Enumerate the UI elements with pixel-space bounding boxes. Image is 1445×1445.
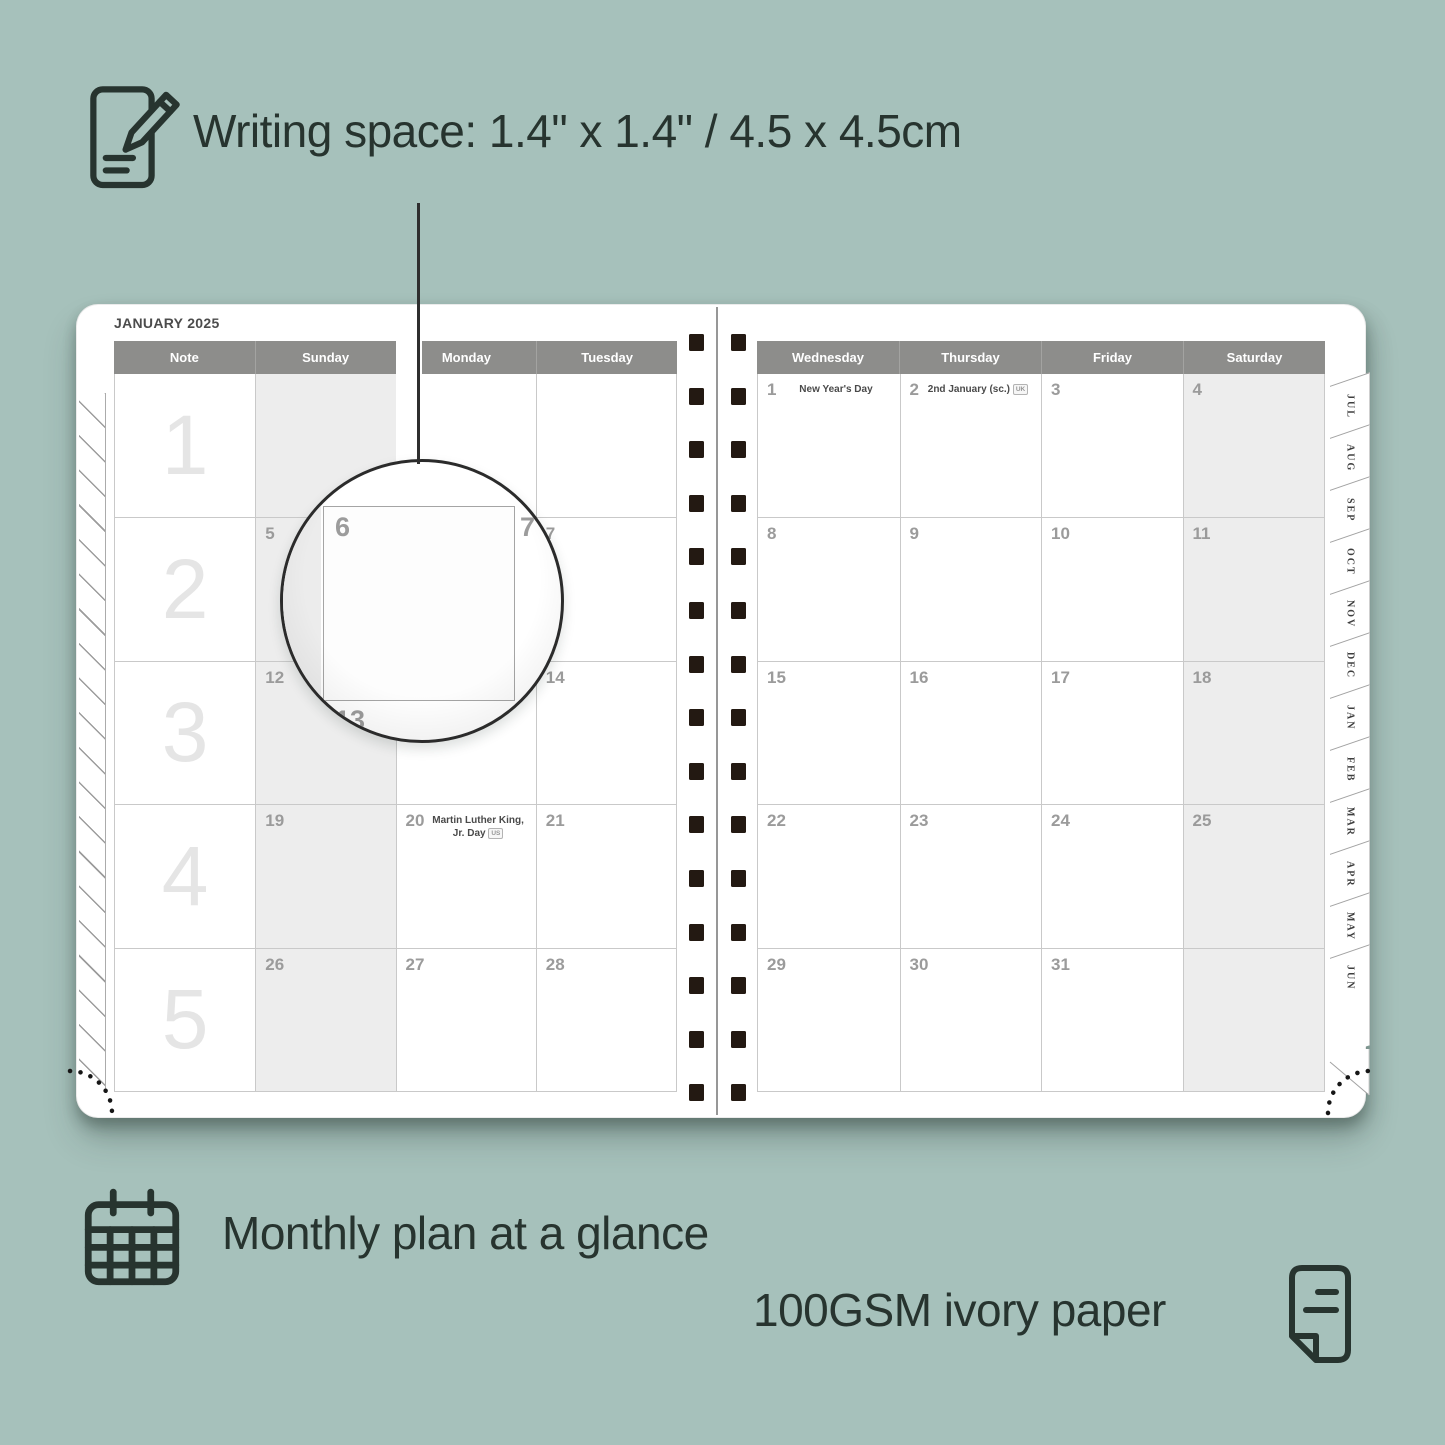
writing-note-pencil-icon — [84, 74, 188, 192]
spiral-hole — [731, 1031, 746, 1048]
spiral-hole — [731, 709, 746, 726]
date-number: 4 — [1184, 374, 1202, 400]
flag-badge: UK — [1013, 384, 1028, 395]
calendar-cell: 21 — [536, 804, 676, 947]
calendar-cell: 30 — [900, 948, 1042, 1091]
date-number: 25 — [1184, 805, 1212, 831]
calendar-cell: 14 — [536, 661, 676, 804]
calendar-cell: 1 — [115, 374, 255, 517]
date-number: 11 — [1184, 518, 1211, 544]
date-number: 31 — [1042, 949, 1070, 975]
date-number: 26 — [256, 949, 284, 975]
date-number: 18 — [1184, 662, 1212, 688]
date-number: 10 — [1042, 518, 1070, 544]
date-number: 1 — [758, 374, 776, 400]
spiral-hole — [689, 1084, 704, 1101]
spiral-hole — [731, 816, 746, 833]
week-number: 4 — [115, 805, 255, 947]
holiday-label: 2nd January (sc.) UK — [919, 374, 1041, 396]
calendar-cell: 9 — [900, 517, 1042, 660]
week-number: 5 — [115, 949, 255, 1091]
spiral-hole — [731, 924, 746, 941]
spiral-hole — [731, 656, 746, 673]
month-tab-label: AUG — [1334, 436, 1366, 480]
date-number: 20 — [397, 805, 425, 831]
calendar-cell: 11 — [1183, 517, 1325, 660]
calendar-cell: 29 — [758, 948, 900, 1091]
date-number: 12 — [256, 662, 284, 688]
holiday-label: New Year's Day — [776, 374, 899, 396]
date-number: 30 — [901, 949, 929, 975]
spiral-hole — [731, 763, 746, 780]
month-tab-label: SEP — [1334, 488, 1366, 532]
month-tab-label: DEC — [1334, 644, 1366, 688]
spiral-hole — [689, 656, 704, 673]
week-number: 1 — [115, 374, 255, 517]
date-number: 27 — [397, 949, 425, 975]
calendar-cell: 17 — [1041, 661, 1183, 804]
month-tab-label: OCT — [1334, 540, 1366, 584]
calendar-cell: 24 — [1041, 804, 1183, 947]
date-number: 24 — [1042, 805, 1070, 831]
calendar-cell: 15 — [758, 661, 900, 804]
pointer-line — [417, 203, 420, 464]
date-number: 19 — [256, 805, 284, 831]
right-grid: 1New Year's Day22nd January (sc.) UK3489… — [757, 374, 1325, 1092]
planner-book: JANUARY 2025 NoteSundayMondayTuesday 125… — [76, 304, 1366, 1118]
spiral-hole — [689, 602, 704, 619]
month-tab-label: JUL — [1334, 384, 1366, 428]
calendar-cell: 23 — [900, 804, 1042, 947]
month-tab-label: MAY — [1334, 904, 1366, 948]
month-tab-label: APR — [1334, 852, 1366, 896]
spiral-hole — [731, 602, 746, 619]
spiral-hole — [731, 388, 746, 405]
spiral-hole — [689, 441, 704, 458]
spiral-hole — [689, 763, 704, 780]
spiral-hole — [731, 977, 746, 994]
right-page-calendar: WednesdayThursdayFridaySaturday 1New Yea… — [757, 341, 1325, 1092]
day-header: Thursday — [899, 341, 1041, 374]
writing-space-label: Writing space: 1.4" x 1.4" / 4.5 x 4.5cm — [193, 104, 962, 158]
day-header: Saturday — [1183, 341, 1325, 374]
calendar-cell: 27 — [396, 948, 536, 1091]
spiral-hole — [689, 388, 704, 405]
month-tab-label: NOV — [1334, 592, 1366, 636]
calendar-cell: 25 — [1183, 804, 1325, 947]
calendar-cell: 10 — [1041, 517, 1183, 660]
stitch-arc-left — [56, 1058, 128, 1130]
spiral-hole — [731, 1084, 746, 1101]
flag-badge: US — [488, 828, 503, 839]
day-header: Friday — [1041, 341, 1183, 374]
calendar-cell: 2 — [115, 517, 255, 660]
paper-label: 100GSM ivory paper — [753, 1283, 1166, 1337]
date-number: 2 — [901, 374, 919, 400]
spiral-hole — [689, 816, 704, 833]
spiral-hole — [689, 548, 704, 565]
spiral-hole — [731, 495, 746, 512]
day-header: Tuesday — [536, 341, 677, 374]
date-number: 28 — [537, 949, 565, 975]
date-number: 17 — [1042, 662, 1070, 688]
week-number: 2 — [115, 518, 255, 660]
date-number: 15 — [758, 662, 786, 688]
date-number: 5 — [256, 518, 274, 544]
lens-vignette — [283, 462, 561, 740]
center-fold-line — [716, 307, 718, 1115]
calendar-cell: 18 — [1183, 661, 1325, 804]
week-number: 3 — [115, 662, 255, 804]
calendar-cell — [1183, 948, 1325, 1091]
paper-icon — [1272, 1262, 1368, 1366]
spiral-hole — [731, 870, 746, 887]
calendar-cell: 16 — [900, 661, 1042, 804]
date-number: 9 — [901, 518, 919, 544]
date-number: 3 — [1042, 374, 1060, 400]
spiral-hole — [689, 709, 704, 726]
right-header: WednesdayThursdayFridaySaturday — [757, 341, 1325, 374]
calendar-cell: 22nd January (sc.) UK — [900, 374, 1042, 517]
spiral-hole — [689, 1031, 704, 1048]
month-tab-label: MAR — [1334, 800, 1366, 844]
calendar-cell: 28 — [536, 948, 676, 1091]
spiral-hole — [731, 441, 746, 458]
spiral-hole — [689, 977, 704, 994]
calendar-cell: 5 — [115, 948, 255, 1091]
calendar-cell — [536, 374, 676, 517]
spiral-hole — [689, 334, 704, 351]
spiral-hole — [731, 334, 746, 351]
magnifier-lens: 6 7 13 — [280, 459, 564, 743]
calendar-cell: 4 — [1183, 374, 1325, 517]
calendar-cell: 4 — [115, 804, 255, 947]
month-title: JANUARY 2025 — [114, 315, 220, 331]
stitch-arc-right — [1306, 1058, 1378, 1130]
calendar-cell: 19 — [255, 804, 395, 947]
calendar-cell: 20Martin Luther King, Jr. Day US — [396, 804, 536, 947]
date-number: 22 — [758, 805, 786, 831]
page-edge-hatching — [79, 393, 106, 1093]
calendar-cell: 3 — [1041, 374, 1183, 517]
calendar-cell: 8 — [758, 517, 900, 660]
date-number: 8 — [758, 518, 776, 544]
date-number: 21 — [537, 805, 565, 831]
calendar-cell: 26 — [255, 948, 395, 1091]
date-number: 29 — [758, 949, 786, 975]
product-image: Writing space: 1.4" x 1.4" / 4.5 x 4.5cm… — [0, 0, 1445, 1445]
day-header: Sunday — [255, 341, 396, 374]
spiral-hole — [689, 870, 704, 887]
spiral-hole — [689, 495, 704, 512]
calendar-icon — [82, 1188, 182, 1288]
spiral-hole — [731, 548, 746, 565]
holiday-label: Martin Luther King, Jr. Day US — [424, 805, 535, 840]
calendar-cell: 3 — [115, 661, 255, 804]
calendar-cell: 1New Year's Day — [758, 374, 900, 517]
month-tab-label: JAN — [1334, 696, 1366, 740]
date-number: 16 — [901, 662, 929, 688]
monthly-plan-label: Monthly plan at a glance — [222, 1206, 709, 1260]
calendar-cell: 22 — [758, 804, 900, 947]
day-header: Wednesday — [757, 341, 899, 374]
date-number: 23 — [901, 805, 929, 831]
month-tab-label: FEB — [1334, 748, 1366, 792]
spiral-hole — [689, 924, 704, 941]
month-tab-label: JUN — [1334, 956, 1366, 1000]
calendar-cell: 31 — [1041, 948, 1183, 1091]
day-header: Note — [114, 341, 255, 374]
